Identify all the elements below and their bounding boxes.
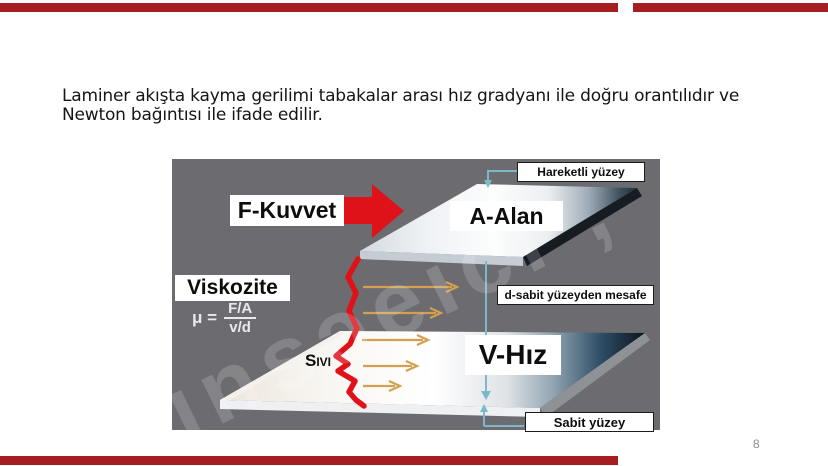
label-force-text: F-Kuvvet: [238, 197, 336, 224]
formula-fraction: F/A v/d: [223, 300, 257, 337]
label-fixed-surface: Sabit yüzey: [525, 412, 654, 432]
label-force: F-Kuvvet: [230, 195, 344, 226]
label-velocity-text: V-Hız: [479, 339, 547, 371]
page-number: 8: [753, 437, 760, 451]
label-distance-text: d-sabit yüzeyden mesafe: [504, 288, 646, 302]
label-distance: d-sabit yüzeyden mesafe: [497, 285, 654, 305]
formula-denominator: v/d: [224, 317, 256, 336]
formula-numerator: F/A: [223, 300, 257, 317]
label-area: A-Alan: [450, 201, 563, 231]
viscosity-diagram: ınsɔeıcı , ınsɔeıcı ,: [0, 0, 828, 466]
viscosity-formula: μ = F/A v/d: [192, 300, 257, 337]
label-fluid: Sıvı: [297, 351, 339, 371]
label-fixed-surface-text: Sabit yüzey: [554, 415, 626, 430]
label-viscosity: Viskozite: [175, 275, 290, 301]
label-moving-surface-text: Hareketli yüzey: [537, 165, 624, 179]
label-area-text: A-Alan: [469, 203, 543, 230]
formula-mu: μ =: [192, 308, 217, 328]
label-moving-surface: Hareketli yüzey: [517, 162, 645, 182]
label-viscosity-text: Viskozite: [187, 276, 278, 300]
slide: Laminer akışta kayma gerilimi tabakalar …: [0, 0, 828, 466]
label-velocity: V-Hız: [465, 335, 561, 375]
label-fluid-text: Sıvı: [305, 351, 331, 371]
